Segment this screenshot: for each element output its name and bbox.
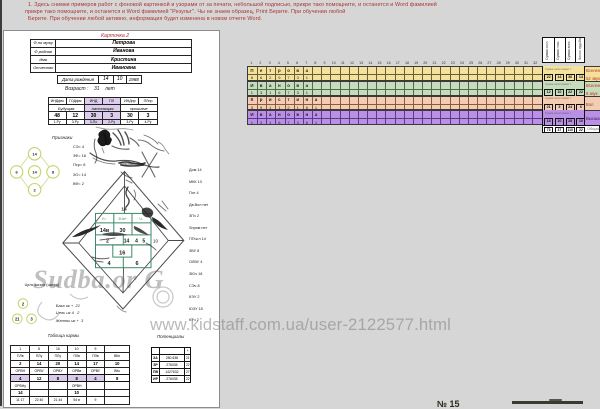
svg-text:4: 4 (107, 261, 111, 267)
svg-text:14: 14 (32, 151, 37, 156)
svg-text:У=: У= (102, 217, 106, 221)
svg-text:ЗЧи+: ЗЧи+ (118, 217, 127, 221)
svg-text:5: 5 (142, 238, 145, 244)
svg-text:Ч-: Ч- (139, 217, 143, 221)
svg-text:14: 14 (124, 238, 130, 244)
svg-text:6: 6 (135, 261, 138, 267)
svg-text:16: 16 (119, 251, 125, 257)
svg-text:21: 21 (15, 317, 20, 322)
svg-text:4: 4 (135, 238, 138, 244)
svg-text:10: 10 (153, 239, 159, 244)
svg-text:14: 14 (32, 170, 37, 175)
